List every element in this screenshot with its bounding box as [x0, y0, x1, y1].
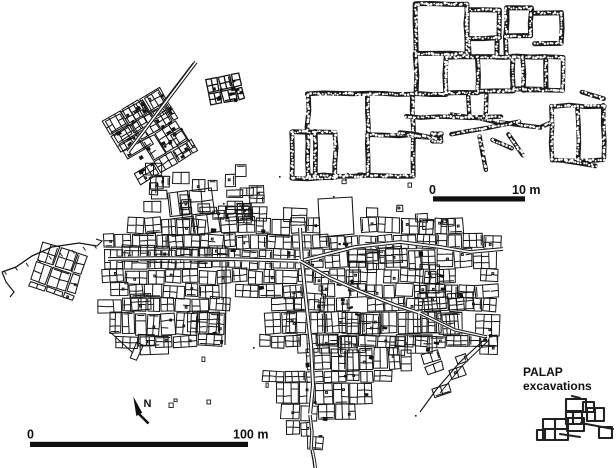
svg-text:10 m: 10 m — [512, 183, 541, 197]
svg-text:100 m: 100 m — [233, 428, 268, 442]
svg-text:0: 0 — [27, 428, 34, 442]
svg-text:PALAP: PALAP — [523, 365, 563, 379]
svg-text:excavations: excavations — [523, 379, 592, 393]
svg-text:N: N — [144, 398, 152, 410]
svg-text:0: 0 — [429, 183, 436, 197]
